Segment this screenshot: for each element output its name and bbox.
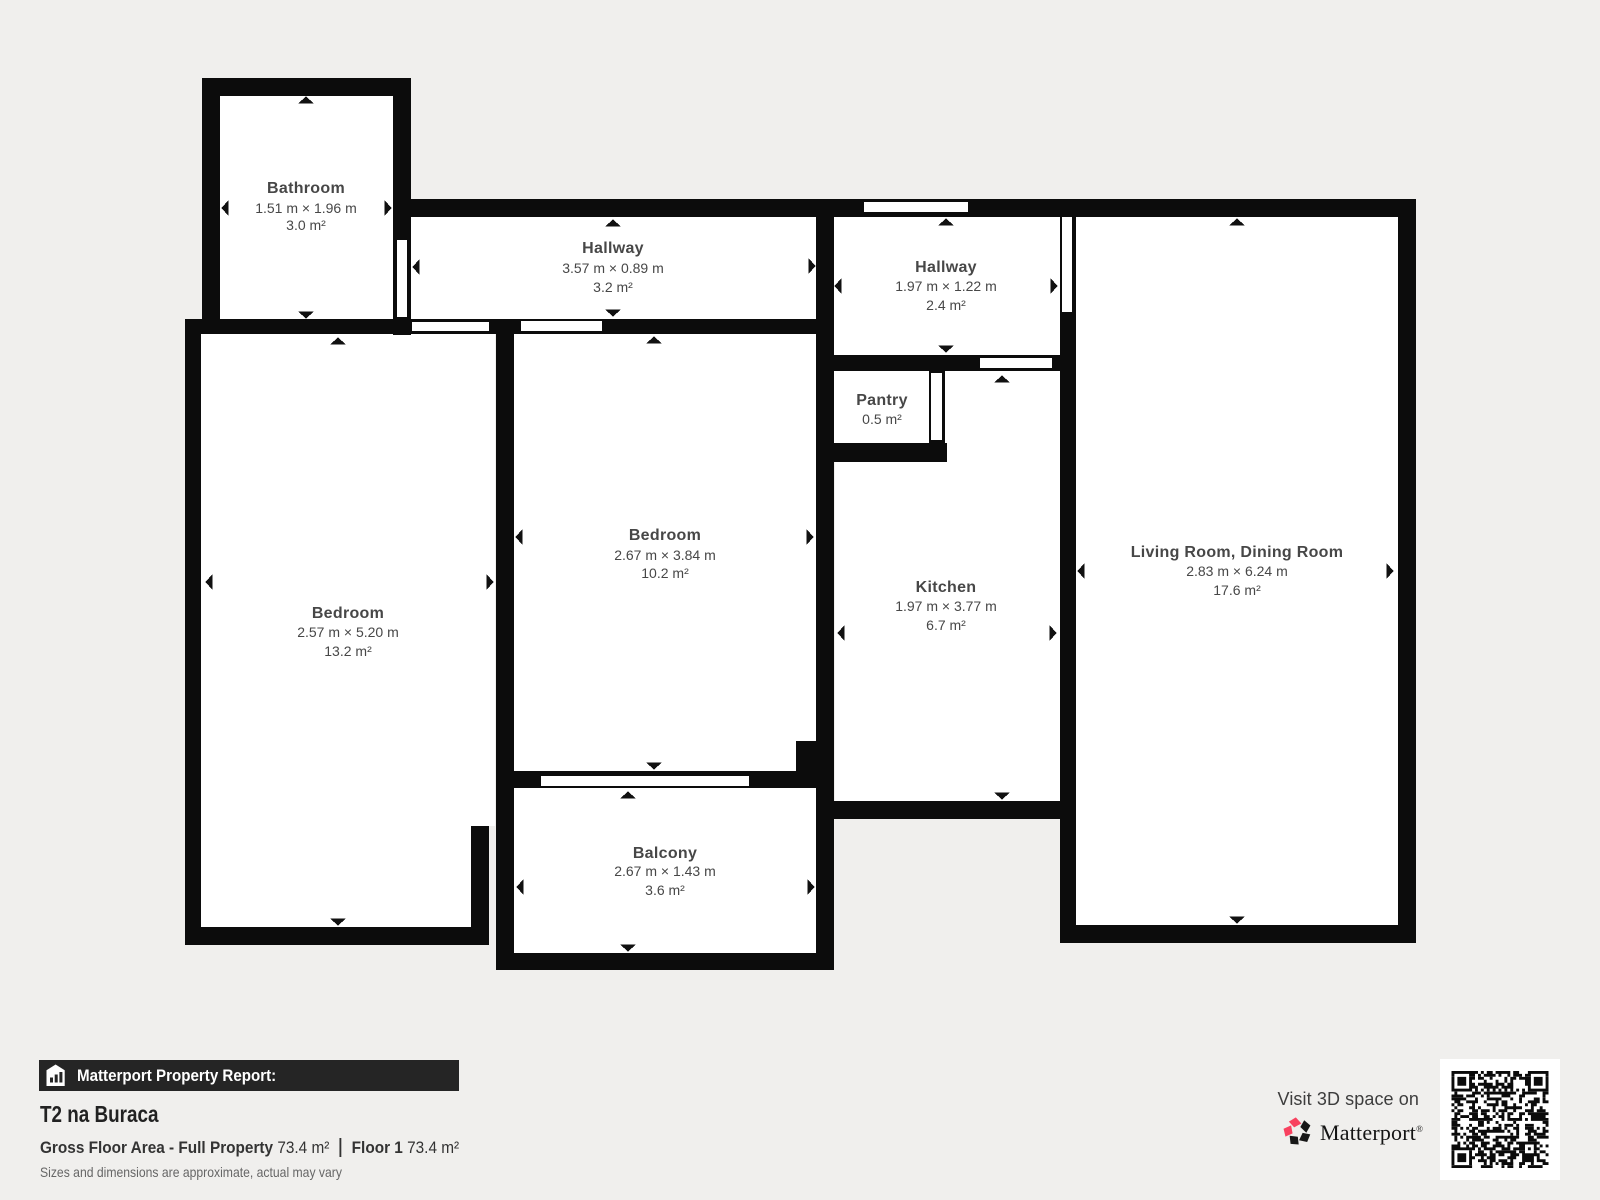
svg-text:3.57 m × 0.89 m: 3.57 m × 0.89 m bbox=[562, 260, 664, 276]
svg-text:1.51 m × 1.96 m: 1.51 m × 1.96 m bbox=[255, 200, 357, 216]
svg-text:Hallway: Hallway bbox=[915, 259, 977, 276]
svg-text:10.2 m²: 10.2 m² bbox=[641, 565, 689, 581]
svg-text:3.0 m²: 3.0 m² bbox=[286, 217, 326, 233]
svg-text:1.97 m × 3.77 m: 1.97 m × 3.77 m bbox=[895, 598, 997, 614]
svg-text:Hallway: Hallway bbox=[582, 240, 644, 257]
svg-text:Bathroom: Bathroom bbox=[267, 180, 345, 197]
svg-text:Kitchen: Kitchen bbox=[916, 579, 977, 596]
svg-text:3.6 m²: 3.6 m² bbox=[645, 882, 685, 898]
svg-text:17.6 m²: 17.6 m² bbox=[1213, 582, 1261, 598]
svg-text:0.5 m²: 0.5 m² bbox=[862, 411, 902, 427]
svg-text:Pantry: Pantry bbox=[856, 392, 908, 409]
svg-text:2.4 m²: 2.4 m² bbox=[926, 297, 966, 313]
svg-text:3.2 m²: 3.2 m² bbox=[593, 279, 633, 295]
svg-text:Bedroom: Bedroom bbox=[312, 605, 384, 622]
svg-text:6.7 m²: 6.7 m² bbox=[926, 617, 966, 633]
svg-text:Living Room, Dining Room: Living Room, Dining Room bbox=[1131, 544, 1344, 561]
svg-text:1.97 m × 1.22 m: 1.97 m × 1.22 m bbox=[895, 278, 997, 294]
svg-text:2.83 m × 6.24 m: 2.83 m × 6.24 m bbox=[1186, 563, 1288, 579]
svg-text:2.67 m × 1.43 m: 2.67 m × 1.43 m bbox=[614, 863, 716, 879]
svg-text:2.57 m × 5.20 m: 2.57 m × 5.20 m bbox=[297, 624, 399, 640]
svg-text:Bedroom: Bedroom bbox=[629, 527, 701, 544]
svg-text:13.2 m²: 13.2 m² bbox=[324, 643, 372, 659]
svg-text:2.67 m × 3.84 m: 2.67 m × 3.84 m bbox=[614, 547, 716, 563]
svg-text:Balcony: Balcony bbox=[633, 845, 697, 862]
